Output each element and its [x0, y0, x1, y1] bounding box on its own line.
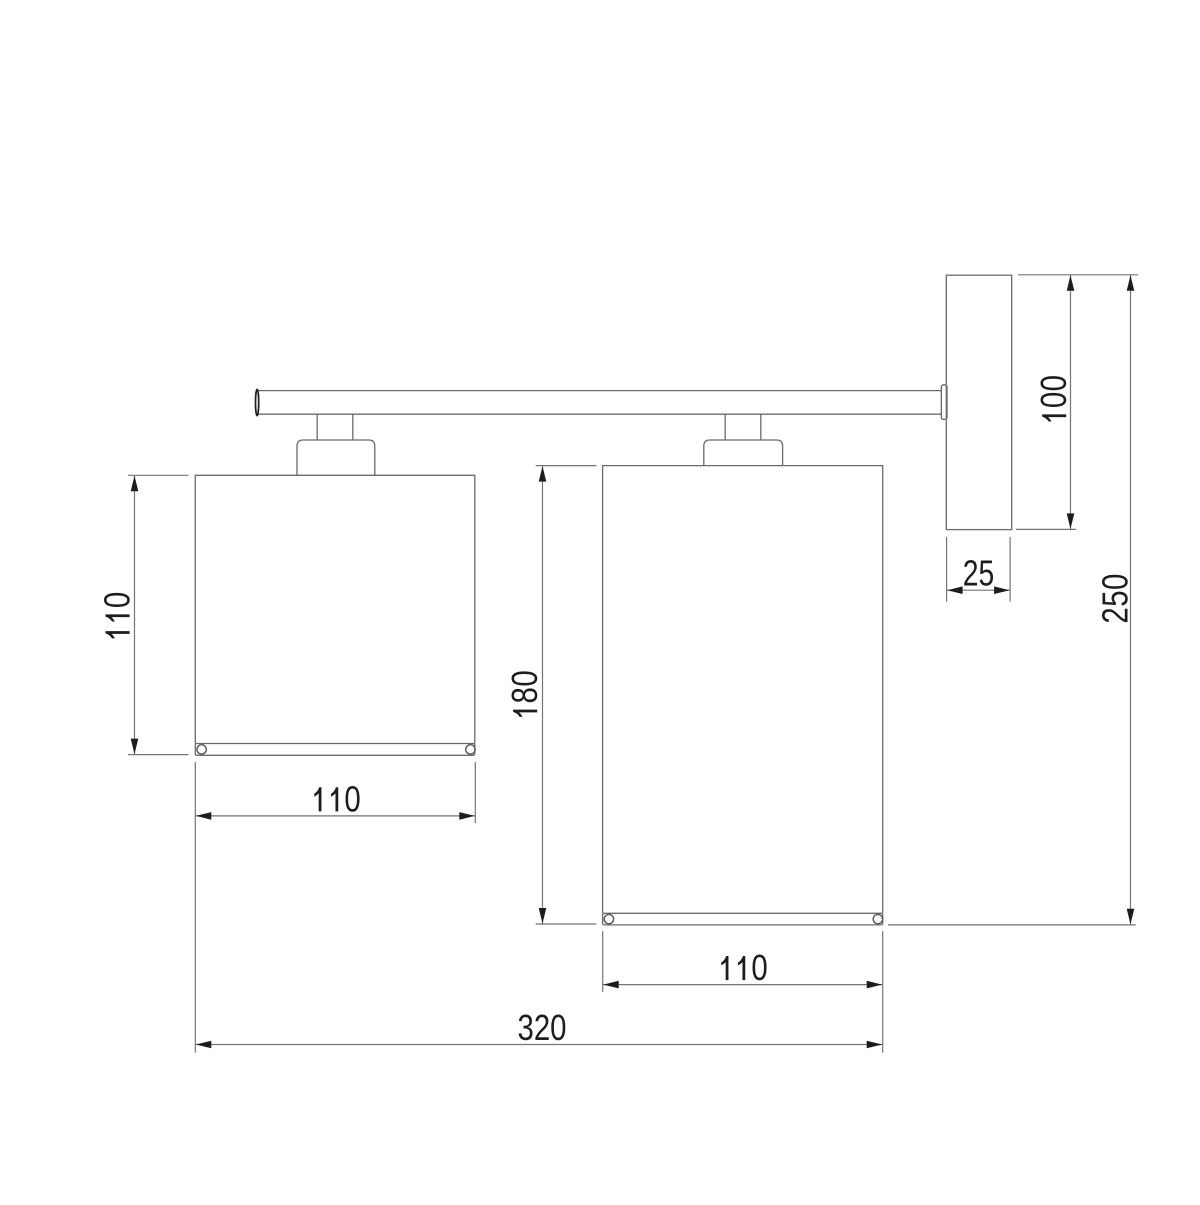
svg-text:0: 0: [504, 670, 545, 686]
svg-text:0: 0: [1033, 392, 1074, 408]
svg-text:8: 8: [504, 687, 545, 703]
svg-text:5: 5: [1094, 590, 1135, 606]
svg-text:0: 0: [1033, 375, 1074, 391]
svg-text:0: 0: [344, 779, 360, 820]
svg-text:25: 25: [963, 553, 995, 594]
svg-text:320: 320: [518, 1007, 567, 1048]
svg-text:0: 0: [97, 592, 138, 608]
svg-text:0: 0: [751, 947, 767, 988]
svg-text:0: 0: [1094, 574, 1135, 590]
svg-text:2: 2: [1094, 607, 1135, 623]
